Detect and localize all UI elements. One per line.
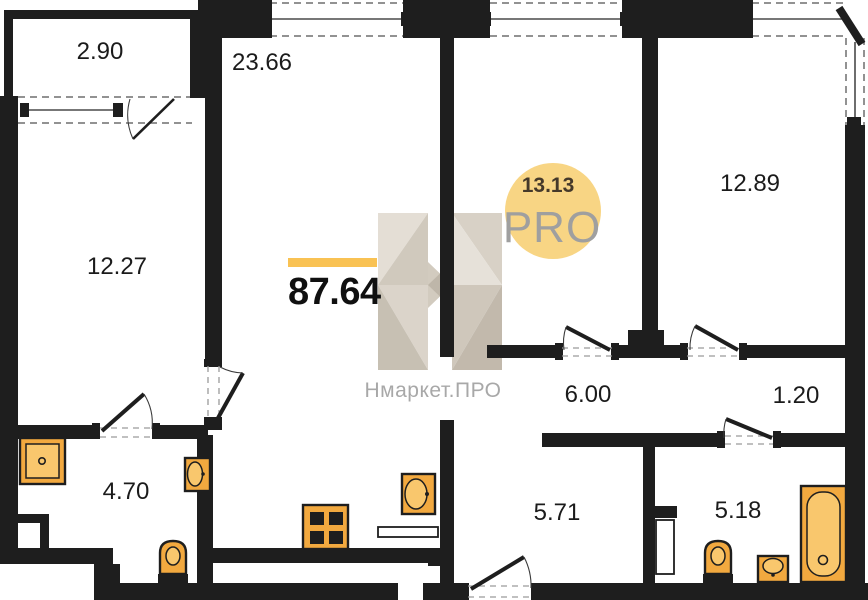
room-area-label-living: 23.66 [232,49,292,77]
room-area-label-bath-left: 4.70 [103,478,150,506]
room-area-label-center: 13.13 [522,174,575,198]
toilet-icon [703,541,733,584]
room-area-label-bath-right: 5.18 [715,497,762,525]
room-area-label-hallway: 6.00 [565,381,612,409]
room-area-label-balcony: 2.90 [77,38,124,66]
total-area-block: 87.64 [288,258,381,311]
pro-logo-text: PRO [503,203,601,253]
watermark-text: Нмаркет.ПРО [365,379,502,403]
total-area-label: 87.64 [288,273,381,311]
floorplan: 2.90 23.66 12.27 13.13 12.89 6.00 1.20 4… [0,0,868,600]
stove-icon [303,505,348,549]
sink-icon [185,458,210,491]
room-area-label-corridor: 5.71 [534,499,581,527]
duct-shaft [656,520,674,574]
sink-icon [402,474,435,514]
room-area-label-bedroom-left: 12.27 [87,253,147,281]
toilet-icon [158,541,188,584]
room-area-label-closet: 1.20 [773,382,820,410]
counter-partition [378,527,438,537]
accent-bar [288,258,377,267]
sink-icon [758,556,788,582]
shower-icon [20,438,65,484]
corner-window-post [839,8,862,44]
bathtub-icon [801,486,846,582]
room-area-label-bedroom-right: 12.89 [720,170,780,198]
